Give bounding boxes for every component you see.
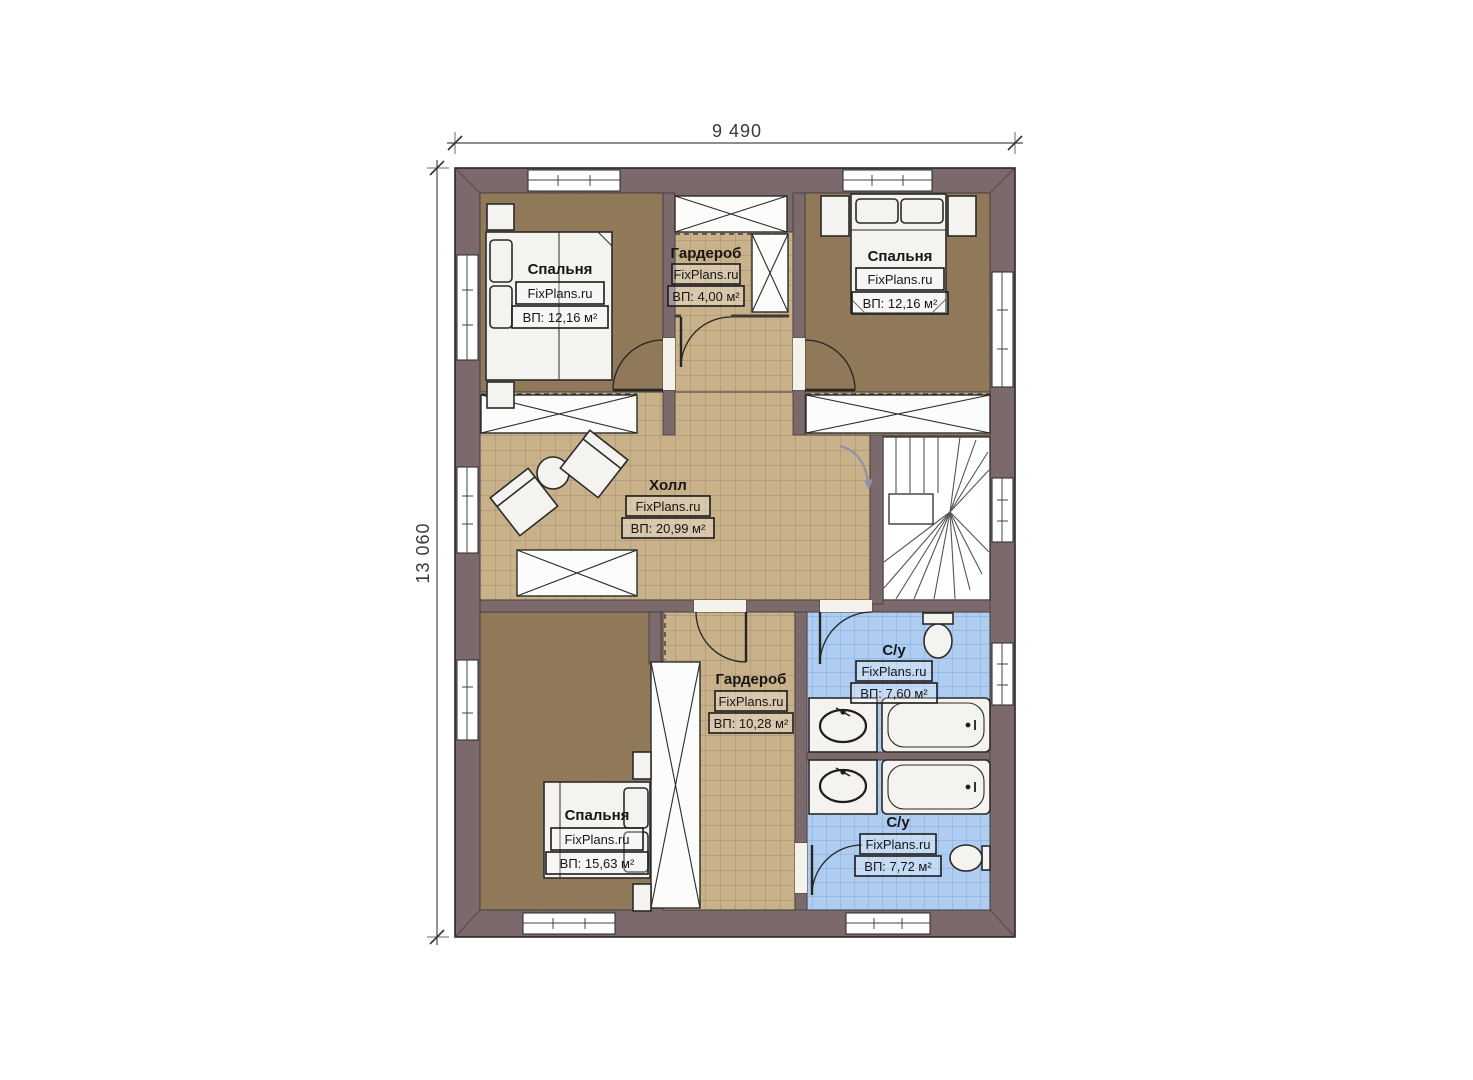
svg-text:ВП: 15,63 м²: ВП: 15,63 м² [560, 856, 635, 871]
dimension-width: 9 490 [447, 121, 1023, 154]
window-symbol [846, 913, 930, 934]
svg-text:FixPlans.ru: FixPlans.ru [861, 664, 926, 679]
svg-text:Холл: Холл [649, 477, 687, 494]
window-symbol [457, 255, 478, 360]
window-symbol [523, 913, 615, 934]
window-symbol [992, 272, 1013, 387]
svg-text:ВП: 20,99 м²: ВП: 20,99 м² [631, 521, 706, 536]
svg-text:ВП: 7,72 м²: ВП: 7,72 м² [864, 859, 932, 874]
floor-plan-drawing: 9 490 13 060 [0, 0, 1473, 1080]
bathtub [882, 698, 990, 752]
svg-text:ВП: 12,16 м²: ВП: 12,16 м² [523, 310, 598, 325]
svg-text:FixPlans.ru: FixPlans.ru [867, 272, 932, 287]
bathtub [882, 760, 990, 814]
svg-text:Спальня: Спальня [868, 248, 933, 265]
toilet [950, 845, 990, 871]
svg-text:ВП: 12,16 м²: ВП: 12,16 м² [863, 296, 938, 311]
svg-text:Спальня: Спальня [528, 261, 593, 278]
sink [809, 698, 877, 752]
svg-text:Гардероб: Гардероб [716, 671, 787, 688]
sink [809, 760, 877, 814]
svg-text:FixPlans.ru: FixPlans.ru [527, 286, 592, 301]
svg-text:С/у: С/у [882, 642, 906, 659]
room-label-wardrobe-top: Гардероб FixPlans.ru ВП: 4,00 м² [668, 245, 744, 306]
wardrobe-cabinet [651, 662, 700, 908]
dimension-width-label: 9 490 [712, 121, 762, 141]
dimension-height: 13 060 [413, 160, 449, 945]
wardrobe-cabinet [752, 234, 788, 312]
wardrobe-cabinet [806, 395, 990, 433]
svg-text:ВП: 7,60 м²: ВП: 7,60 м² [860, 686, 928, 701]
window-symbol [992, 643, 1013, 705]
svg-text:Гардероб: Гардероб [671, 245, 742, 262]
wardrobe-cabinet [675, 196, 787, 232]
svg-text:FixPlans.ru: FixPlans.ru [564, 832, 629, 847]
svg-text:FixPlans.ru: FixPlans.ru [673, 267, 738, 282]
floor-plan: 9 490 13 060 [0, 0, 1473, 1080]
dimension-height-label: 13 060 [413, 522, 433, 583]
svg-text:С/у: С/у [886, 814, 910, 831]
window-symbol [992, 478, 1013, 542]
svg-text:FixPlans.ru: FixPlans.ru [635, 499, 700, 514]
svg-text:FixPlans.ru: FixPlans.ru [718, 694, 783, 709]
wardrobe-cabinet [517, 550, 637, 596]
window-symbol [457, 467, 478, 553]
window-symbol [457, 660, 478, 740]
window-symbol [528, 170, 620, 191]
svg-text:FixPlans.ru: FixPlans.ru [865, 837, 930, 852]
round-table [537, 457, 569, 489]
window-symbol [843, 170, 932, 191]
svg-text:Спальня: Спальня [565, 807, 630, 824]
svg-text:ВП: 10,28 м²: ВП: 10,28 м² [714, 716, 789, 731]
svg-text:ВП: 4,00 м²: ВП: 4,00 м² [672, 289, 740, 304]
room-label-wardrobe-bottom: Гардероб FixPlans.ru ВП: 10,28 м² [709, 671, 793, 733]
toilet [923, 613, 953, 658]
